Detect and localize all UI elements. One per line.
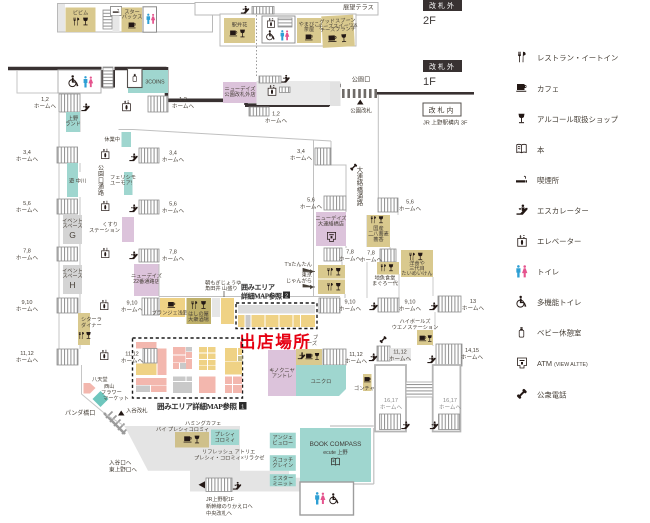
svg-text:駅弁花: 駅弁花 [232,21,248,29]
svg-text:公園口: 公園口 [352,77,371,84]
svg-text:2F: 2F [423,15,436,27]
svg-text:ランド: ランド [65,121,81,128]
svg-text:3,4: 3,4 [169,151,177,157]
svg-text:ホームへ: ホームへ [121,307,144,314]
svg-text:改札外: 改札外 [429,1,456,10]
svg-text:八天堂: 八天堂 [92,375,108,383]
svg-text:ゴンチャ: ゴンチャ [354,384,375,392]
svg-text:9,10: 9,10 [345,300,356,306]
svg-text:新幹線のりかえ口へ: 新幹線のりかえ口へ [206,502,253,510]
svg-text:ーズ: ーズ [307,339,317,347]
svg-text:ホームへ: ホームへ [389,356,412,363]
svg-text:遊 中川: 遊 中川 [69,177,86,185]
svg-text:スペース: スペース [62,223,82,230]
svg-text:ホームへ: ホームへ [16,357,39,364]
svg-text:ダイナー: ダイナー [81,321,102,329]
svg-text:ホームへ: ホームへ [300,204,323,211]
svg-text:角田井 山盛り: 角田井 山盛り [205,284,238,292]
svg-text:7,8: 7,8 [169,250,177,256]
svg-text:13: 13 [470,299,476,305]
svg-text:7,8: 7,8 [23,249,31,255]
svg-text:1,2: 1,2 [41,97,49,103]
svg-text:東京: 東京 [302,271,312,279]
svg-text:22番通路店: 22番通路店 [133,277,160,285]
svg-text:公園改札: 公園改札 [350,107,372,115]
svg-text:西山: 西山 [104,382,114,390]
svg-text:茶屋: 茶屋 [304,25,314,33]
svg-text:たいめいけん: たいめいけん [401,270,432,277]
svg-text:ホームへ: ホームへ [461,354,484,361]
svg-text:ホームへ: ホームへ [172,103,195,110]
svg-text:3COINS: 3COINS [145,80,165,86]
svg-text:JR 上野駅構内 3F: JR 上野駅構内 3F [423,119,468,127]
svg-text:3,4: 3,4 [297,149,305,155]
svg-text:ホームへ: ホームへ [34,103,57,110]
svg-text:入谷口へ: 入谷口へ [109,459,132,467]
svg-text:公園改札外店: 公園改札外店 [224,90,255,98]
svg-text:9,10: 9,10 [405,300,416,306]
svg-text:5,6: 5,6 [406,200,414,206]
svg-text:大連絡橋通路: 大連絡橋通路 [357,165,364,207]
svg-text:9,10: 9,10 [127,301,138,307]
svg-text:5,6: 5,6 [23,201,31,207]
svg-text:公衆電話: 公衆電話 [537,391,567,400]
svg-text:スペース: スペース [62,273,82,280]
svg-text:ホームへ: ホームへ [162,256,185,263]
svg-text:ビビム: ビビム [73,9,89,17]
svg-text:レストラン・イートイン: レストラン・イートイン [537,54,618,63]
svg-text:喫煙所: 喫煙所 [537,176,560,185]
svg-text:詳細MAP参照: 詳細MAP参照 [241,292,282,301]
svg-text:まぐろ一代: まぐろ一代 [372,279,399,287]
svg-text:大衆酒場: 大衆酒場 [188,315,209,323]
svg-text:ホームへ: ホームへ [16,306,39,313]
svg-text:バックス: バックス [122,14,143,21]
svg-text:ホームへ: ホームへ [380,404,403,411]
svg-text:シターラ: シターラ [81,315,102,323]
svg-text:コロミィ: コロミィ [215,437,236,444]
svg-text:改札外: 改札外 [429,62,456,71]
svg-text:BOOK COMPASS: BOOK COMPASS [310,441,362,448]
svg-text:ホームへ: ホームへ [339,306,362,313]
svg-text:展望テラス: 展望テラス [343,4,374,12]
svg-text:G: G [69,230,76,240]
svg-text:3,4: 3,4 [23,150,31,156]
svg-text:9,10: 9,10 [22,300,33,306]
svg-text:中央改札へ: 中央改札へ [206,509,232,517]
svg-text:16,17: 16,17 [384,398,398,404]
svg-text:フラワー: フラワー [101,389,122,396]
svg-text:JR上野駅1F: JR上野駅1F [206,495,234,503]
svg-text:1: 1 [241,405,244,411]
svg-text:ホームへ: ホームへ [290,155,313,162]
svg-text:ホームへ: ホームへ [162,208,185,215]
svg-text:ステーション: ステーション [89,227,120,234]
svg-text:ユーモア!: ユーモア! [110,180,132,187]
svg-text:ホームへ: ホームへ [439,404,462,411]
svg-text:ハミングカフェ: ハミングカフェ [185,419,221,427]
svg-text:ホームへ: ホームへ [345,358,368,365]
svg-text:カフェ: カフェ [537,85,559,94]
svg-text:改札内: 改札内 [429,106,456,115]
svg-text:1,2: 1,2 [179,97,187,103]
svg-text:トイレ: トイレ [537,268,559,277]
svg-text:マーケット: マーケット [103,395,129,402]
svg-text:7,8: 7,8 [367,251,375,257]
svg-text:11,12: 11,12 [349,352,363,358]
svg-text:じゃんがら: じゃんがら [286,277,312,285]
svg-text:リフレッシュ アトリエ: リフレッシュ アトリエ [202,449,255,456]
svg-text:7,8: 7,8 [346,250,354,256]
svg-text:5,6: 5,6 [307,198,315,204]
svg-text:アントレ: アントレ [272,373,293,380]
svg-text:プレシィ・コロミィ×リラクゼ: プレシィ・コロミィ×リラクゼ [194,454,264,462]
svg-text:大連絡橋店: 大連絡橋店 [318,220,344,228]
svg-text:エレベーター: エレベーター [537,237,581,246]
svg-text:ウエノステーション: ウエノステーション [392,323,439,331]
svg-text:ホームへ: ホームへ [162,157,185,164]
svg-text:ホームへ: ホームへ [16,255,39,262]
svg-text:16,17: 16,17 [443,398,457,404]
svg-text:ホームへ: ホームへ [399,306,422,313]
svg-text:1,2: 1,2 [272,112,280,118]
svg-text:アルコール取扱ショップ: アルコール取扱ショップ [537,115,619,124]
svg-text:本: 本 [537,146,545,155]
svg-text:ホームへ: ホームへ [16,156,39,163]
svg-text:14,15: 14,15 [465,348,479,354]
svg-text:バイ プレシィコロミィ: バイ プレシィコロミィ [156,426,209,433]
svg-text:ホームへ: ホームへ [462,305,485,312]
svg-text:ホームへ: ホームへ [339,256,362,263]
svg-text:入谷改札: 入谷改札 [126,407,148,415]
svg-text:ホームへ: ホームへ [16,207,39,214]
svg-text:T'sたんたん: T'sたんたん [284,261,312,268]
svg-text:囲みエリア: 囲みエリア [241,283,275,292]
svg-text:くすり: くすり [102,221,118,228]
svg-text:パンダ橋口: パンダ橋口 [65,409,95,417]
svg-text:ミニット: ミニット [272,481,293,488]
svg-text:2: 2 [285,293,288,299]
svg-text:11,12: 11,12 [20,351,34,357]
svg-text:11,12: 11,12 [393,350,407,356]
svg-text:ハイボールズ: ハイボールズ [399,317,430,325]
svg-text:エスカレーター: エスカレーター [537,207,589,216]
svg-text:グレイン: グレイン [272,461,293,469]
svg-text:公園口通路: 公園口通路 [98,165,104,197]
svg-text:蕎香: 蕎香 [373,235,383,243]
svg-text:1F: 1F [423,76,436,88]
svg-text:囲みエリア詳細MAP参照: 囲みエリア詳細MAP参照 [157,401,238,411]
svg-text:ホームへ: ホームへ [265,118,288,125]
svg-text:H: H [69,280,75,290]
svg-text:ベビー休憩室: ベビー休憩室 [537,329,581,338]
svg-text:出店場所: 出店場所 [239,332,311,352]
svg-text:多機能トイレ: 多機能トイレ [537,298,581,307]
svg-text:ビュロー: ビュロー [272,439,293,447]
svg-text:ホームへ: ホームへ [399,206,422,213]
svg-text:ブ: ブ [313,333,318,341]
svg-text:ユニクロ: ユニクロ [311,378,332,385]
svg-text:ecute 上野: ecute 上野 [323,448,348,456]
svg-text:5,6: 5,6 [169,202,177,208]
svg-text:休業中: 休業中 [104,135,120,143]
svg-text:東上野口へ: 東上野口へ [109,466,137,474]
